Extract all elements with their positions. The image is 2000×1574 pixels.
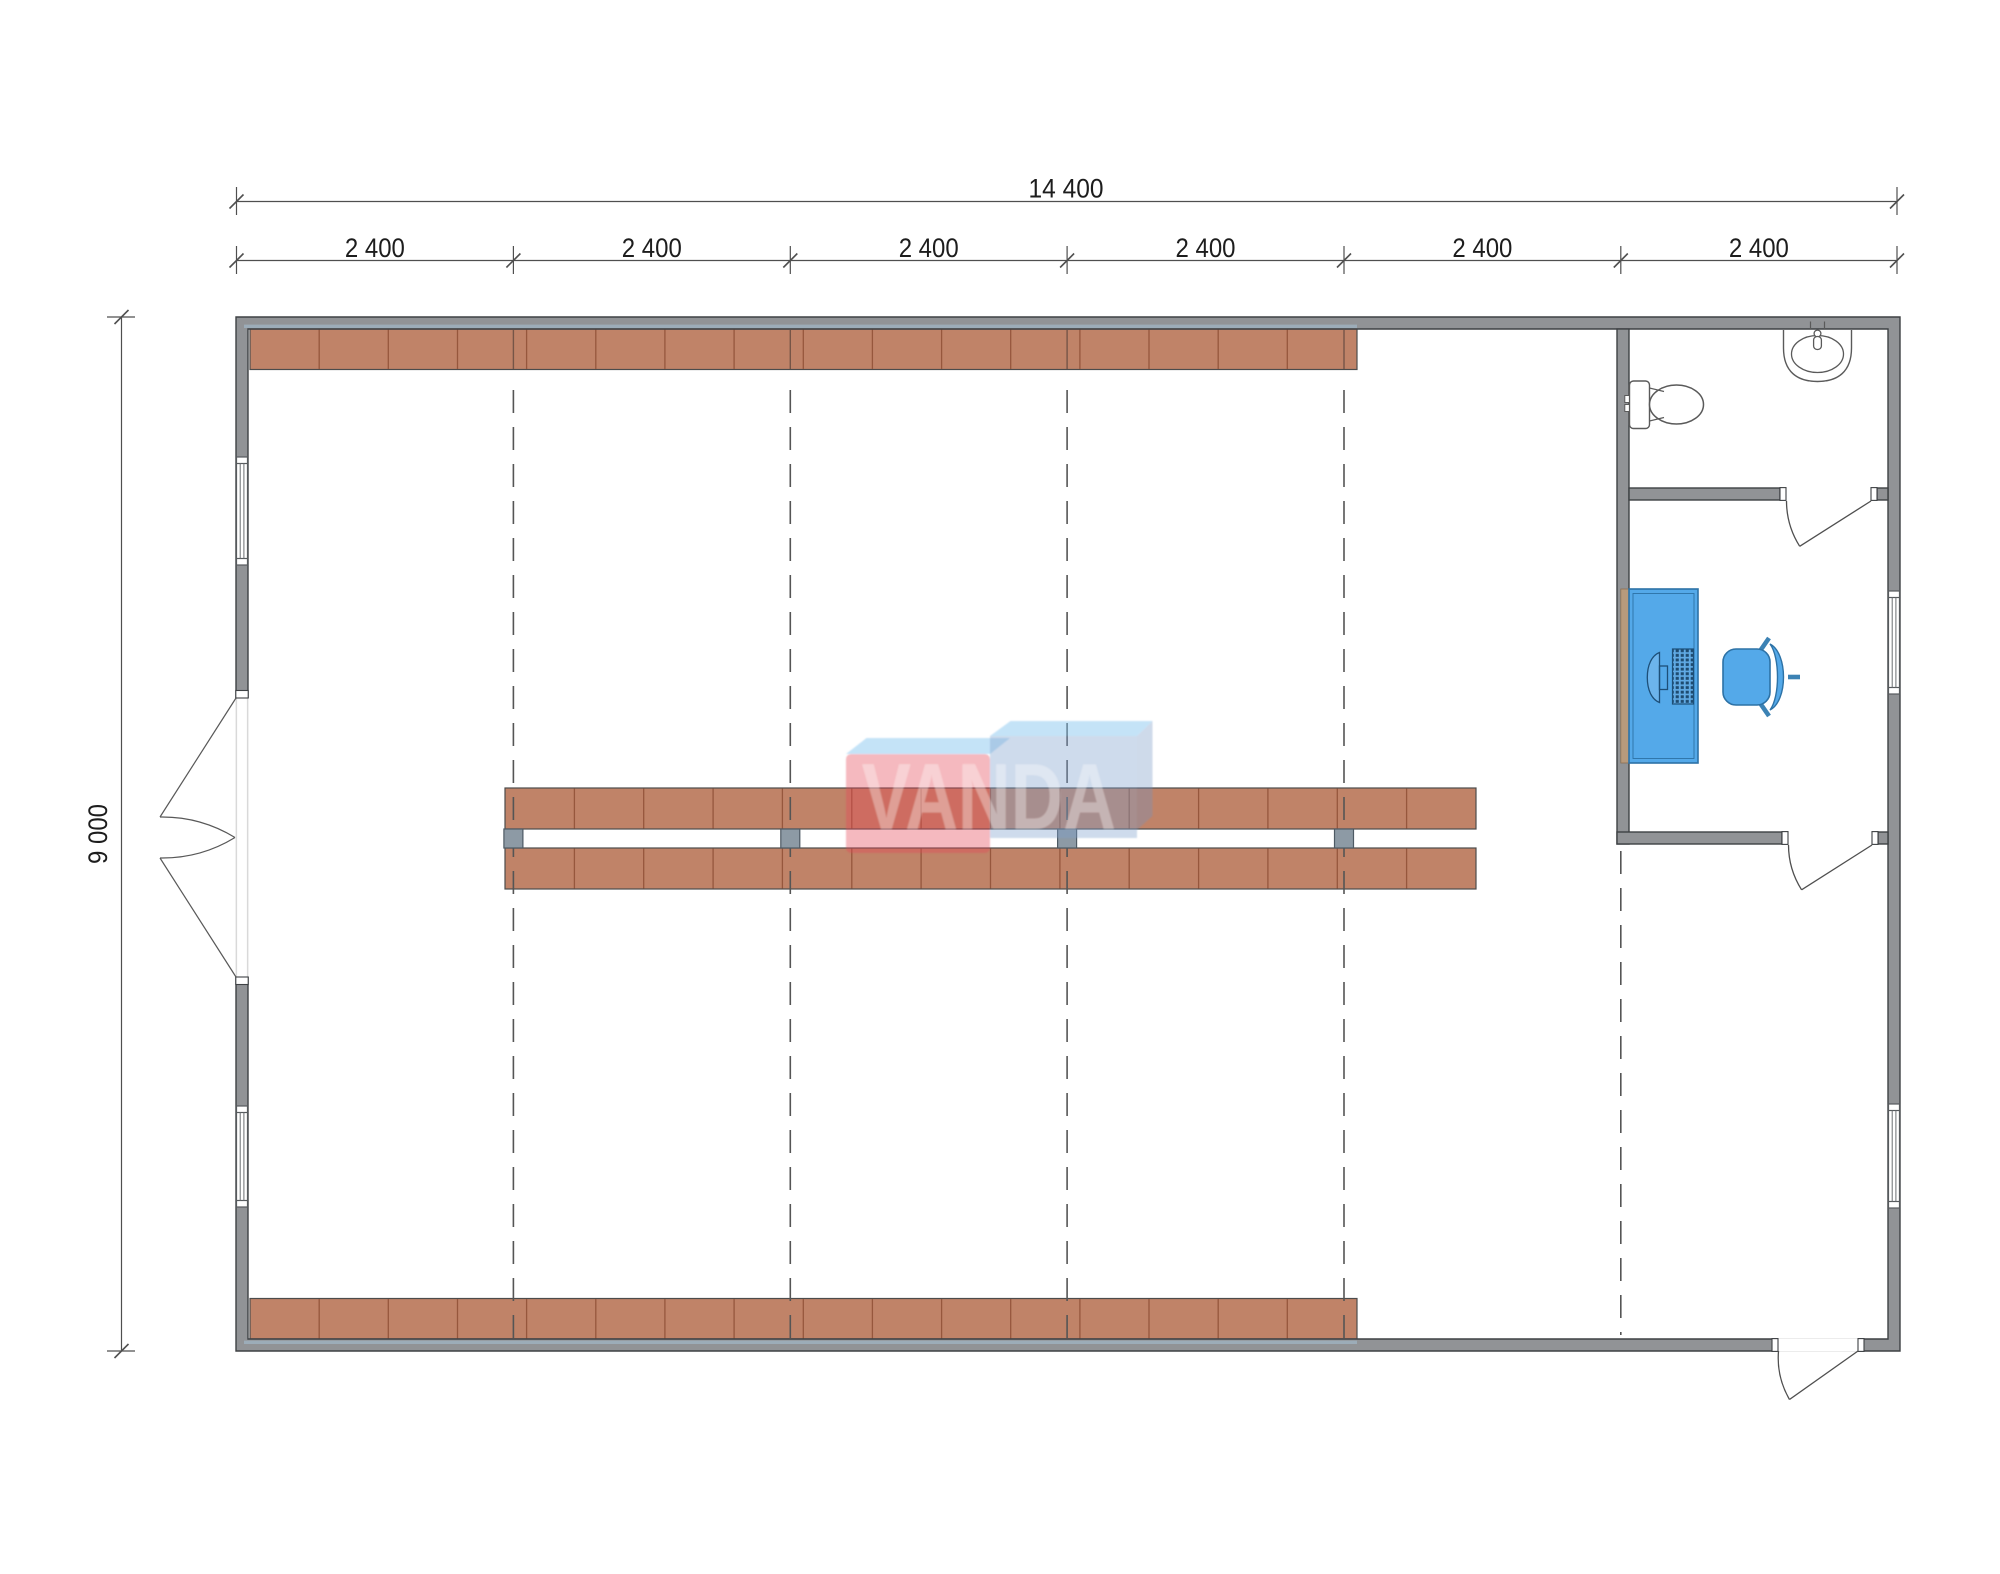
svg-text:2 400: 2 400 xyxy=(1176,233,1236,263)
svg-text:VANDA: VANDA xyxy=(862,744,1116,849)
svg-text:2 400: 2 400 xyxy=(1452,233,1512,263)
svg-text:14 400: 14 400 xyxy=(1029,174,1104,204)
svg-text:9 000: 9 000 xyxy=(83,804,113,864)
svg-text:2 400: 2 400 xyxy=(899,233,959,263)
svg-text:2 400: 2 400 xyxy=(1729,233,1789,263)
svg-text:2 400: 2 400 xyxy=(345,233,405,263)
svg-text:2 400: 2 400 xyxy=(622,233,682,263)
